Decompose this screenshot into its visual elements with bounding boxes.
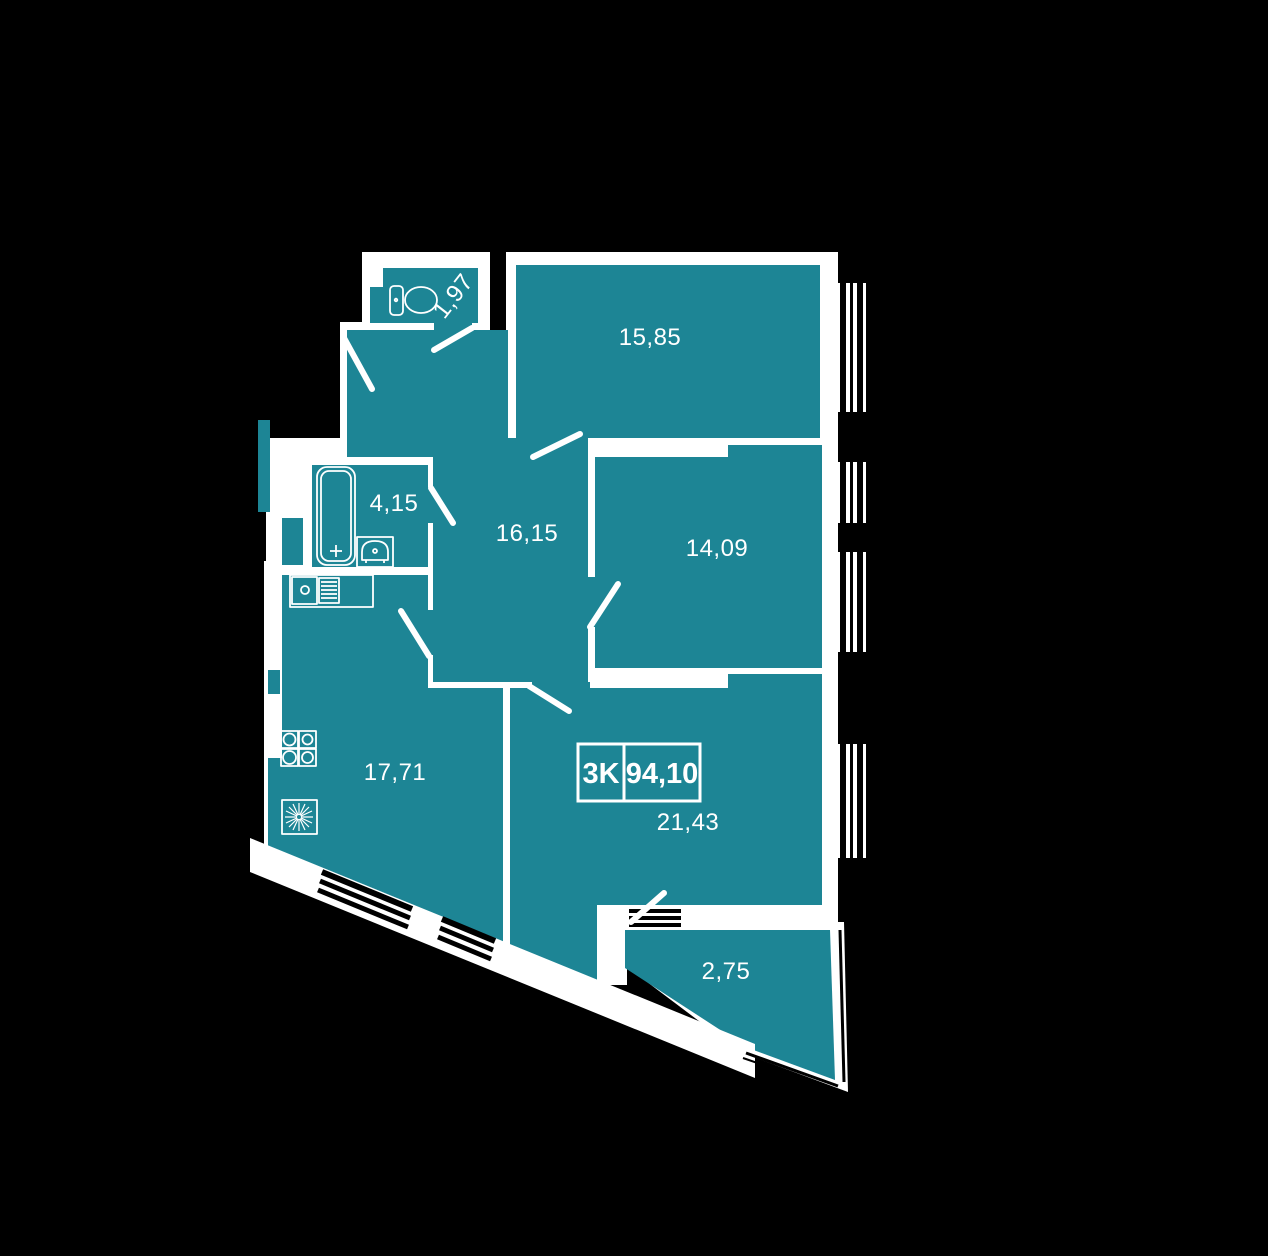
floor-plan: 1,97 15,85 4,15 16,15 14,09 17,71 21,43 … [0, 0, 1268, 1256]
duct-slot [490, 252, 506, 330]
room-label-bathroom: 4,15 [370, 490, 419, 517]
exterior-strip [268, 670, 280, 694]
room-label-living: 21,43 [657, 809, 720, 836]
window-right-2 [838, 462, 866, 523]
unit-total-area: 94,10 [626, 758, 699, 790]
floor-plan-canvas: 1,97 15,85 4,15 16,15 14,09 17,71 21,43 … [0, 0, 1268, 1256]
room-label-hallway: 16,15 [496, 520, 559, 547]
room-label-balcony: 2,75 [702, 958, 751, 985]
room-label-bedroom-2: 14,09 [686, 535, 749, 562]
room-label-kitchen: 17,71 [364, 759, 427, 786]
exterior-strip [258, 420, 270, 512]
window-right-1 [838, 283, 866, 412]
window-right-3 [838, 552, 866, 652]
unit-rooms-count: 3K [582, 758, 619, 790]
window-right-4 [838, 744, 866, 858]
room-label-bedroom-1: 15,85 [619, 324, 682, 351]
exterior-strip [282, 518, 303, 565]
room-bedroom-1 [516, 265, 820, 438]
